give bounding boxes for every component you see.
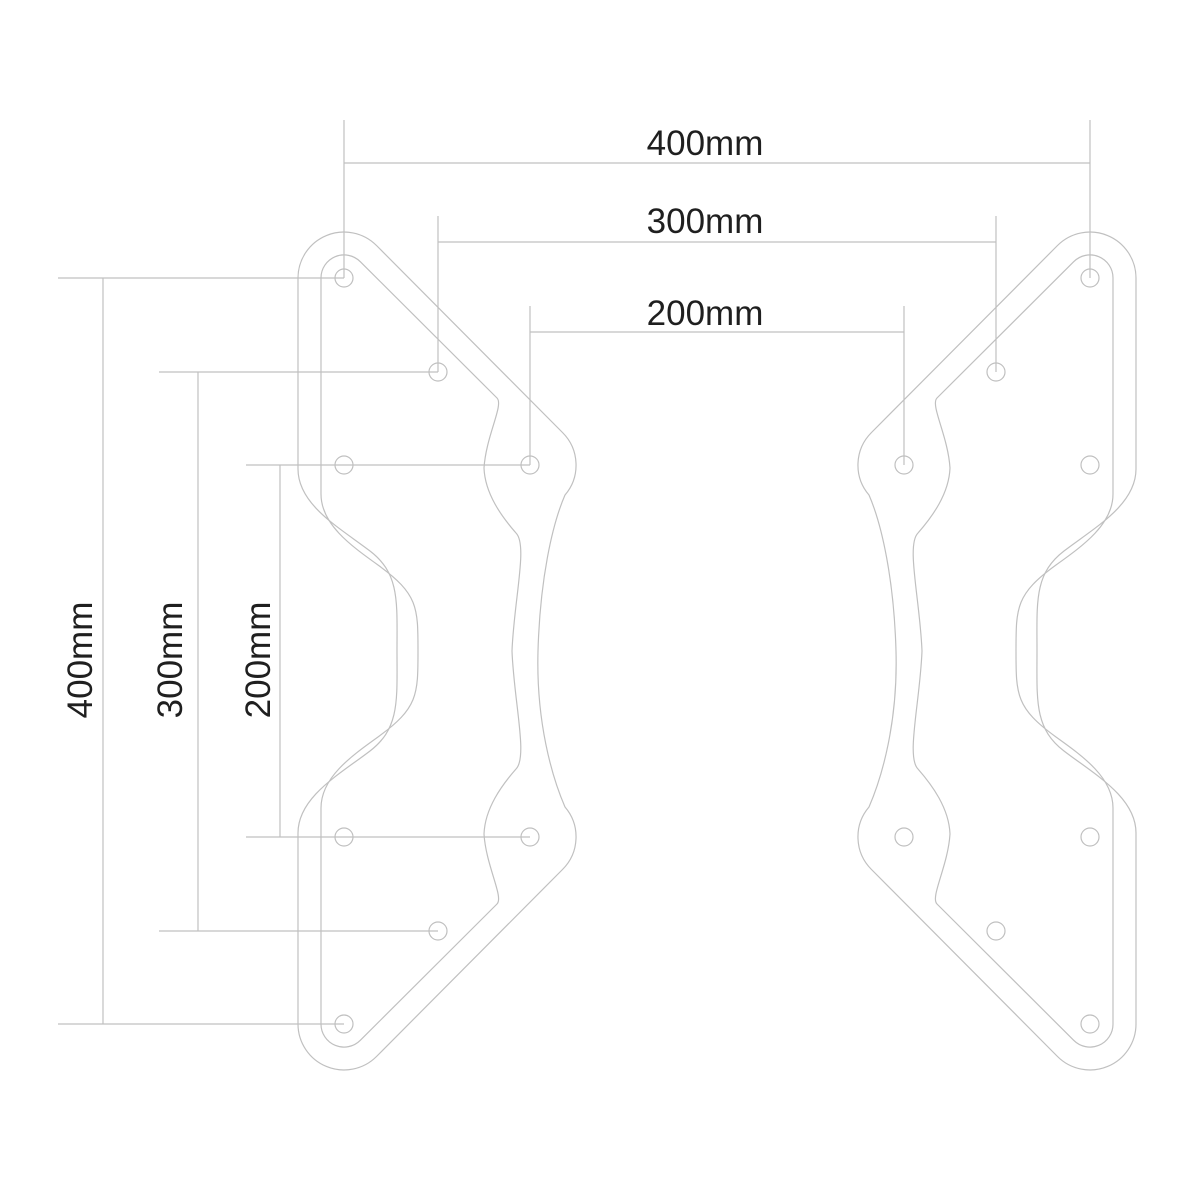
- technical-drawing-svg: 400mm300mm200mm400mm300mm200mm: [0, 0, 1200, 1200]
- right-plate-mounting-hole: [895, 828, 913, 846]
- horizontal-dimension-400mm: 400mm: [344, 120, 1090, 278]
- right-plate: [858, 232, 1136, 1070]
- dimension-label: 200mm: [647, 294, 764, 333]
- right-plate-mounting-hole: [1081, 828, 1099, 846]
- dimension-label: 400mm: [647, 124, 764, 163]
- horizontal-dimension-300mm: 300mm: [438, 202, 996, 372]
- dimension-label: 200mm: [239, 602, 278, 719]
- vertical-dimension-200mm: 200mm: [239, 465, 530, 837]
- right-plate-mounting-hole: [1081, 456, 1099, 474]
- dimension-label: 300mm: [647, 202, 764, 241]
- vertical-dimension-400mm: 400mm: [58, 278, 344, 1024]
- vesa-adapter-dimension-diagram: 400mm300mm200mm400mm300mm200mm: [0, 0, 1200, 1200]
- dimension-label: 300mm: [151, 602, 190, 719]
- left-plate: [298, 232, 576, 1070]
- vertical-dimension-300mm: 300mm: [151, 372, 438, 931]
- right-plate-inner-contour: [913, 255, 1113, 1047]
- right-plate-outer-contour: [858, 232, 1136, 1070]
- left-plate-inner-contour: [321, 255, 521, 1047]
- left-plate-outer-contour: [298, 232, 576, 1070]
- right-plate-mounting-hole: [987, 922, 1005, 940]
- right-plate-mounting-hole: [1081, 1015, 1099, 1033]
- horizontal-dimension-200mm: 200mm: [530, 294, 904, 465]
- dimension-label: 400mm: [61, 602, 100, 719]
